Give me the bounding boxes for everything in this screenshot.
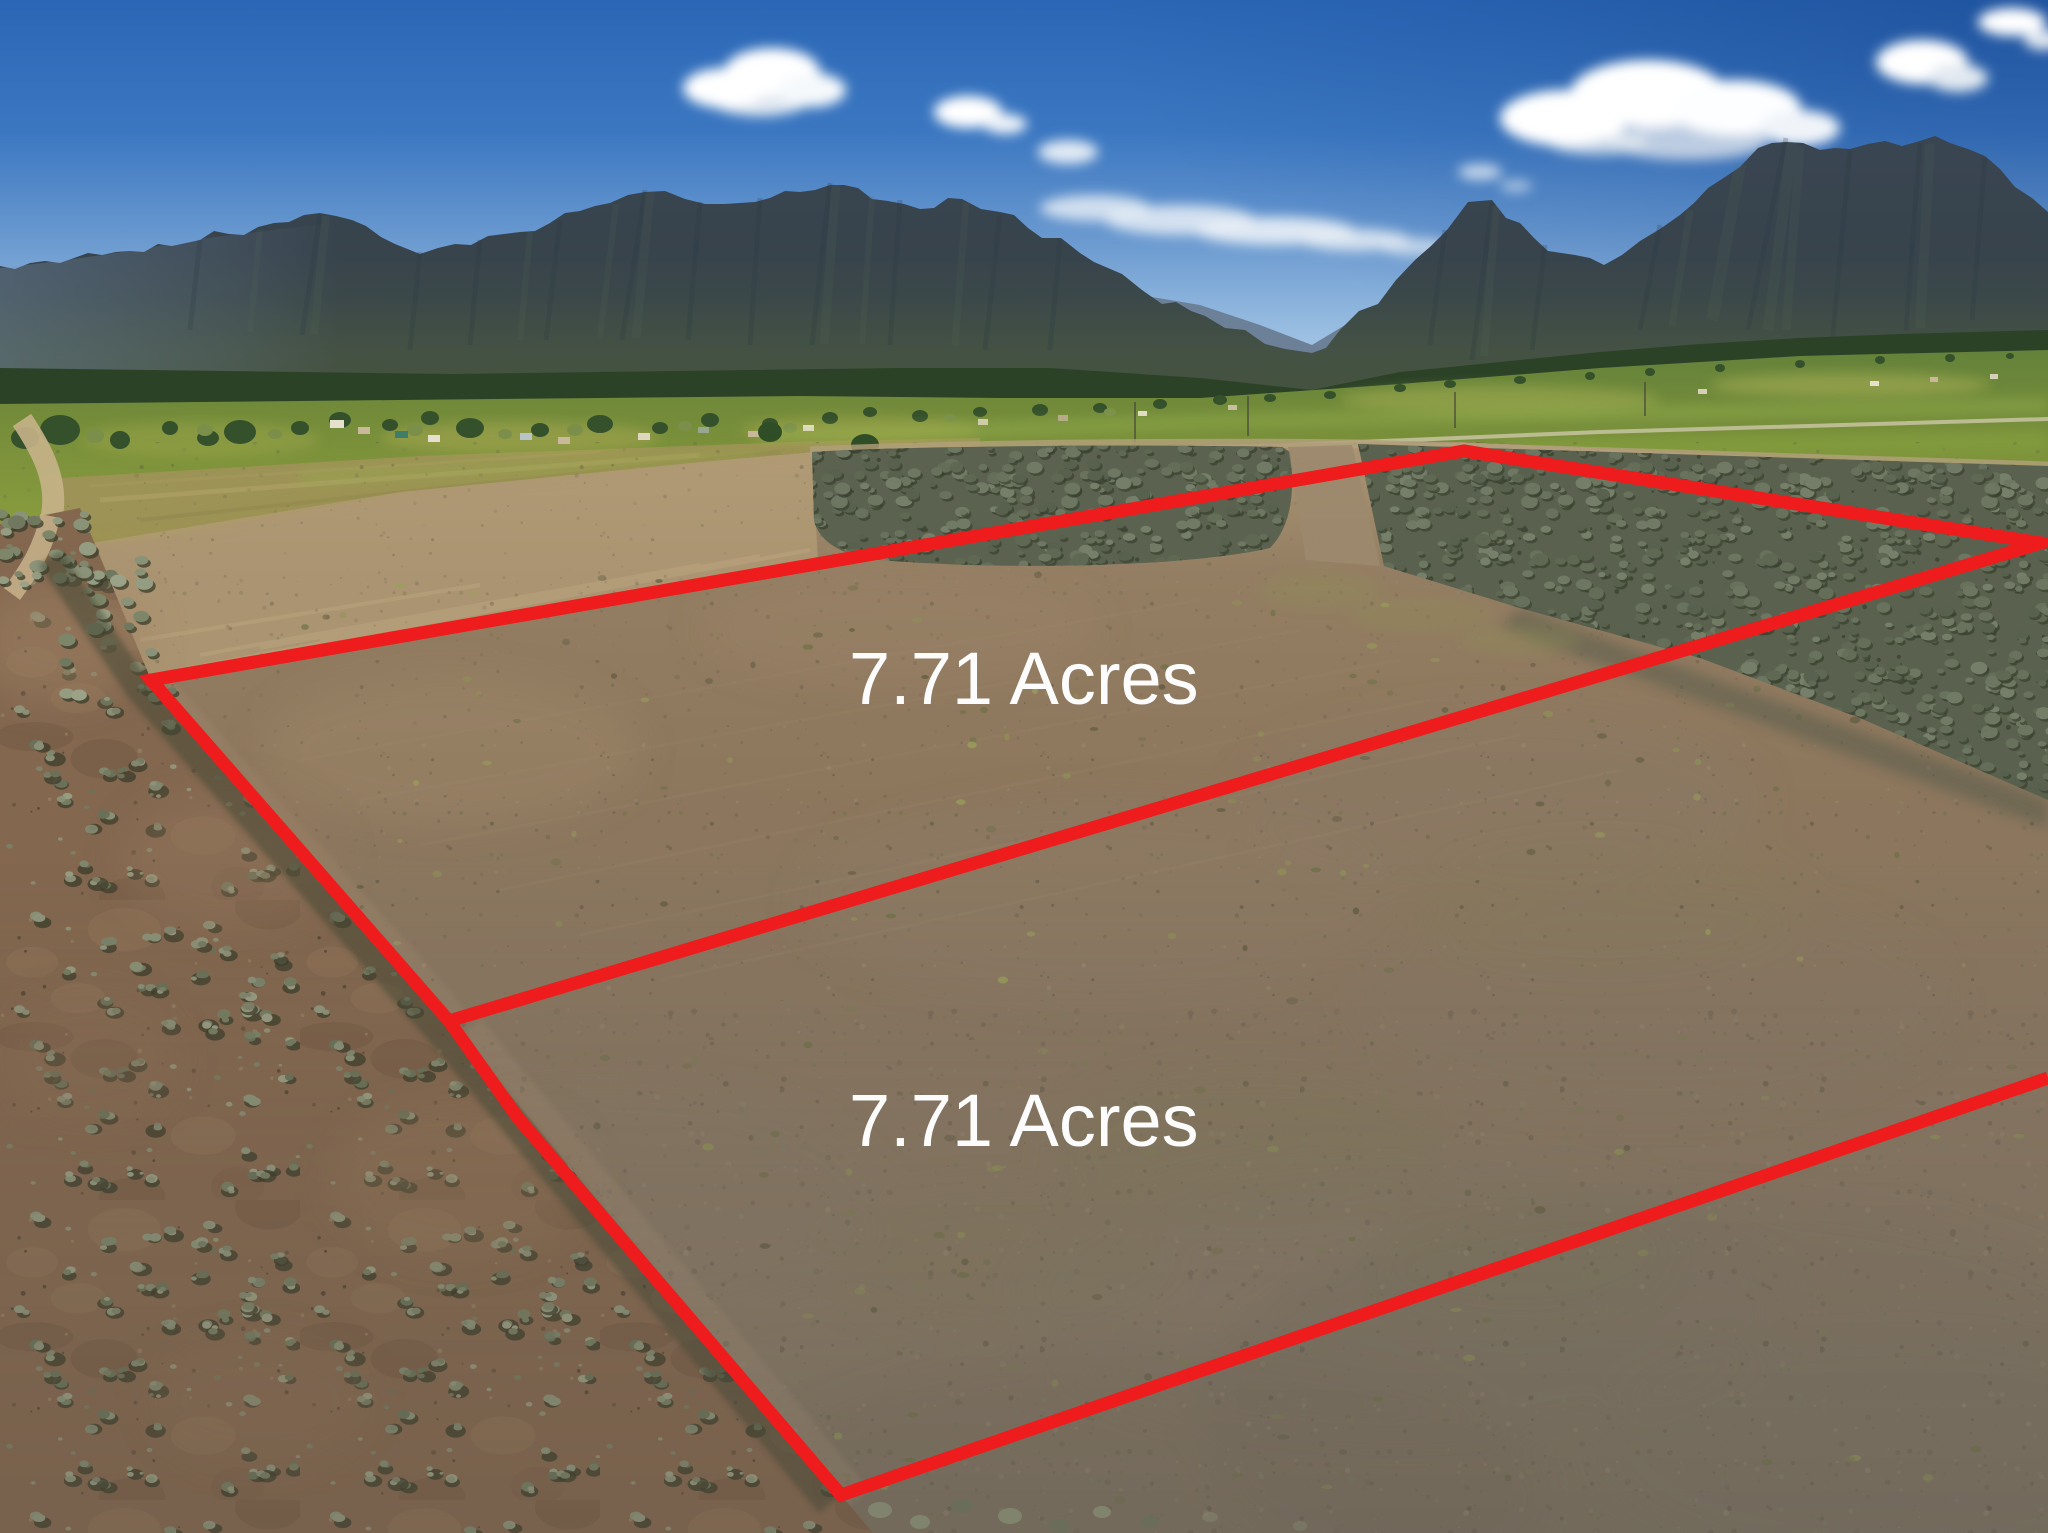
svg-text:7.71 Acres: 7.71 Acres (849, 637, 1199, 720)
svg-text:7.71 Acres: 7.71 Acres (849, 1079, 1199, 1162)
